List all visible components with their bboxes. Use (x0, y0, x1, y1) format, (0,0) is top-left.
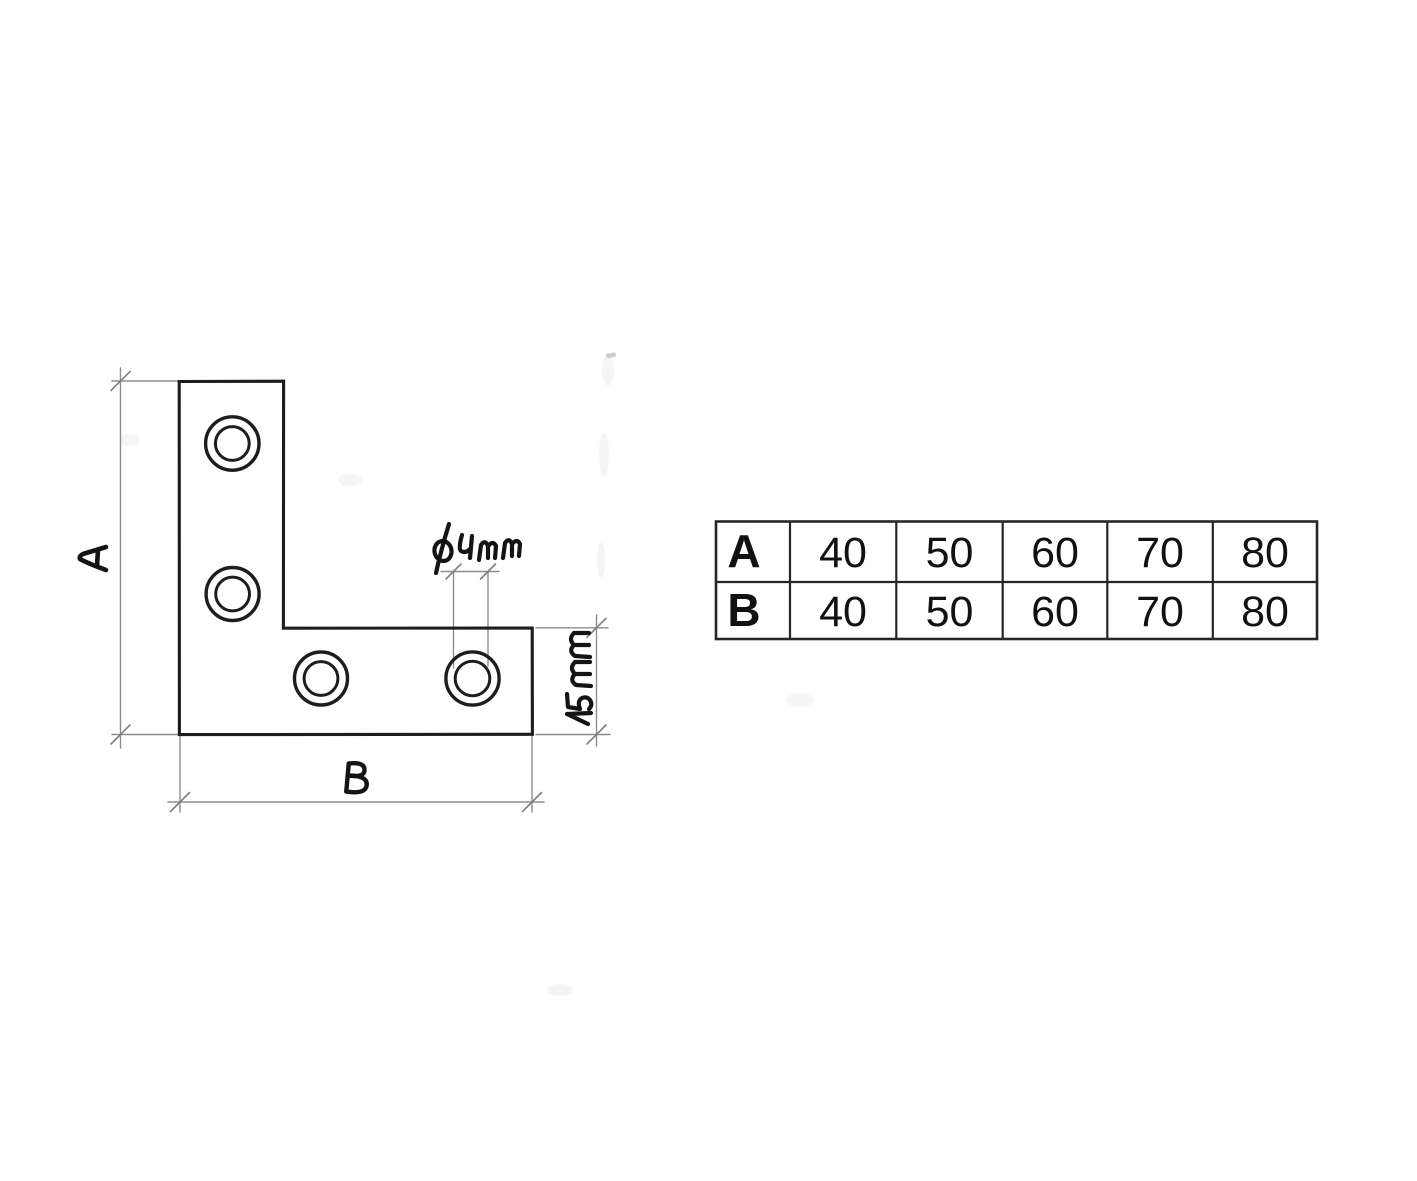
svg-text:60: 60 (1031, 588, 1079, 636)
svg-text:60: 60 (1031, 529, 1079, 577)
svg-text:50: 50 (926, 588, 974, 636)
svg-text:70: 70 (1136, 529, 1184, 577)
svg-text:40: 40 (819, 588, 867, 636)
svg-text:80: 80 (1241, 588, 1289, 636)
svg-text:80: 80 (1241, 529, 1289, 577)
svg-text:40: 40 (819, 529, 867, 577)
svg-text:A: A (727, 525, 760, 577)
svg-text:B: B (727, 584, 760, 636)
svg-text:70: 70 (1136, 588, 1184, 636)
svg-text:50: 50 (926, 529, 974, 577)
